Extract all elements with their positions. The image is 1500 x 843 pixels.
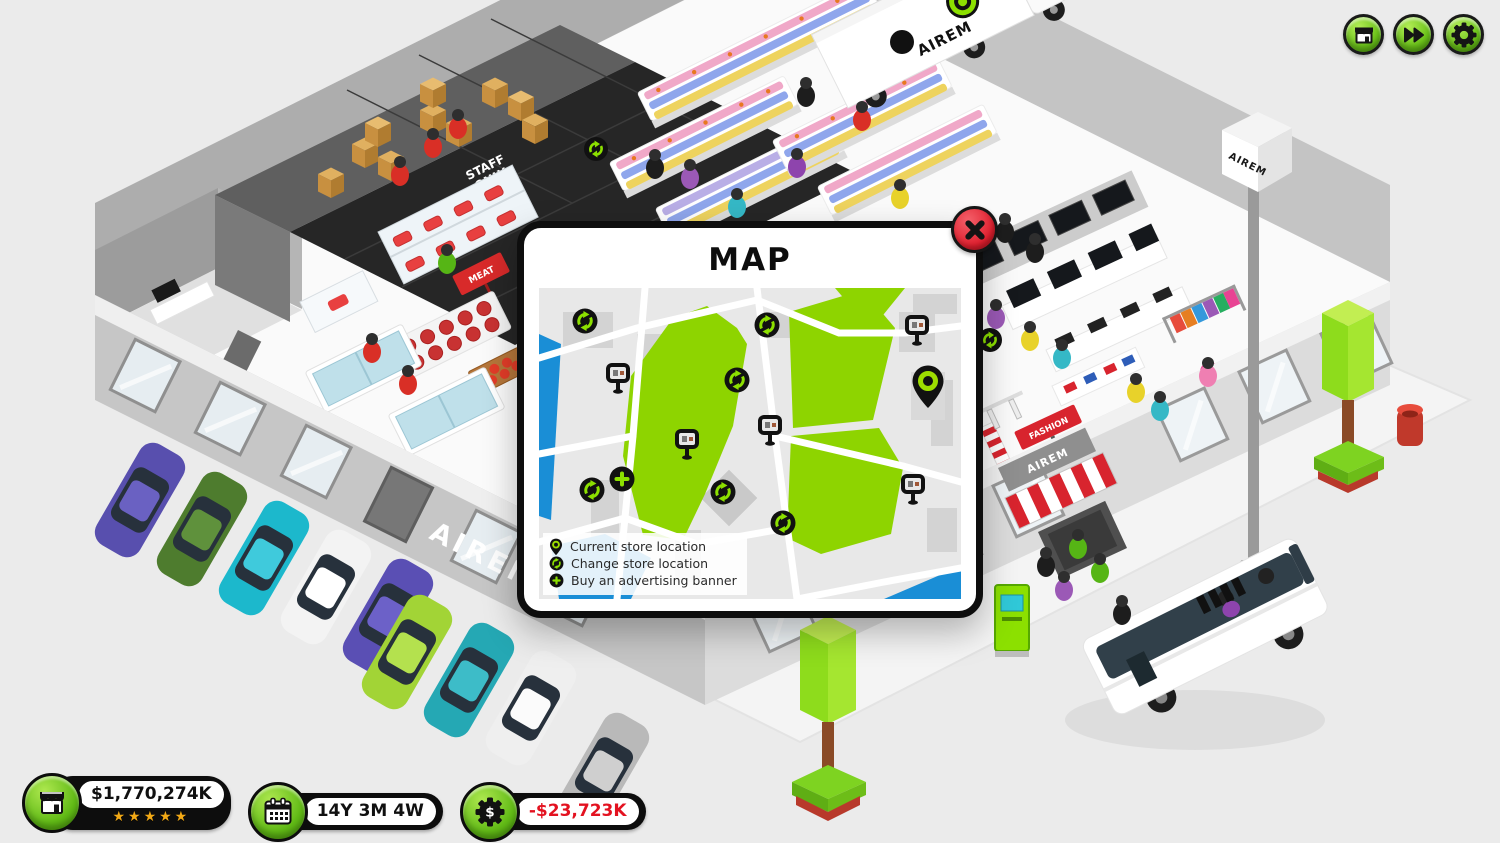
hud: $1,770,274K ★★★★★ 14Y 3M 4W	[22, 776, 646, 830]
store-rating-stars: ★★★★★	[79, 808, 224, 825]
map-dialog: MAP	[517, 221, 983, 618]
fast-forward-button[interactable]	[1393, 14, 1434, 55]
svg-text:$: $	[485, 804, 494, 820]
game-stage: STAFF ONLY	[0, 0, 1500, 843]
current-location-pin-icon	[549, 538, 563, 556]
close-button[interactable]	[951, 206, 998, 253]
map-dialog-title: MAP	[524, 242, 976, 278]
legend-label: Buy an advertising banner	[571, 573, 737, 588]
game-date-value: 14Y 3M 4W	[305, 798, 436, 825]
fast-forward-icon	[1403, 27, 1425, 43]
map-marker-change-location[interactable]	[724, 367, 751, 394]
storefront-icon	[22, 773, 82, 833]
legend-label: Current store location	[570, 539, 706, 554]
map-legend: Current store location Change store loca…	[543, 533, 747, 595]
trash-can	[1397, 404, 1423, 446]
profit-badge[interactable]: $ -$23,723K	[460, 793, 646, 830]
city-map: Current store location Change store loca…	[539, 288, 961, 599]
legend-label: Change store location	[571, 556, 708, 571]
map-marker-buy-banner-plus[interactable]	[609, 466, 636, 493]
map-marker-buy-banner[interactable]	[757, 414, 783, 446]
atm-kiosk	[995, 585, 1029, 657]
topbar	[1343, 14, 1484, 55]
map-marker-current-store[interactable]	[910, 364, 946, 410]
storefront-icon	[1352, 24, 1376, 46]
map-marker-buy-banner[interactable]	[674, 428, 700, 460]
map-marker-buy-banner[interactable]	[605, 362, 631, 394]
map-marker-change-location[interactable]	[710, 479, 737, 506]
map-marker-change-location[interactable]	[572, 308, 599, 335]
map-marker-change-location[interactable]	[754, 312, 781, 339]
balance-badge[interactable]: $1,770,274K ★★★★★	[22, 776, 231, 830]
gear-icon	[1451, 22, 1477, 48]
map-marker-buy-banner[interactable]	[900, 473, 926, 505]
balance-value: $1,770,274K	[79, 781, 224, 808]
map-marker-change-location[interactable]	[770, 510, 797, 537]
gear-dollar-icon: $	[460, 782, 520, 842]
plus-icon	[549, 573, 564, 588]
settings-button[interactable]	[1443, 14, 1484, 55]
calendar-icon	[248, 782, 308, 842]
legend-item-current-location: Current store location	[549, 538, 737, 555]
legend-item-change-location: Change store location	[549, 555, 737, 572]
shop-button[interactable]	[1343, 14, 1384, 55]
legend-item-buy-banner: Buy an advertising banner	[549, 572, 737, 589]
close-icon	[964, 219, 986, 241]
map-marker-change-location[interactable]	[579, 477, 606, 504]
profit-value: -$23,723K	[517, 798, 639, 825]
change-location-icon	[549, 556, 564, 571]
map-marker-buy-banner[interactable]	[904, 314, 930, 346]
date-badge[interactable]: 14Y 3M 4W	[248, 793, 443, 830]
